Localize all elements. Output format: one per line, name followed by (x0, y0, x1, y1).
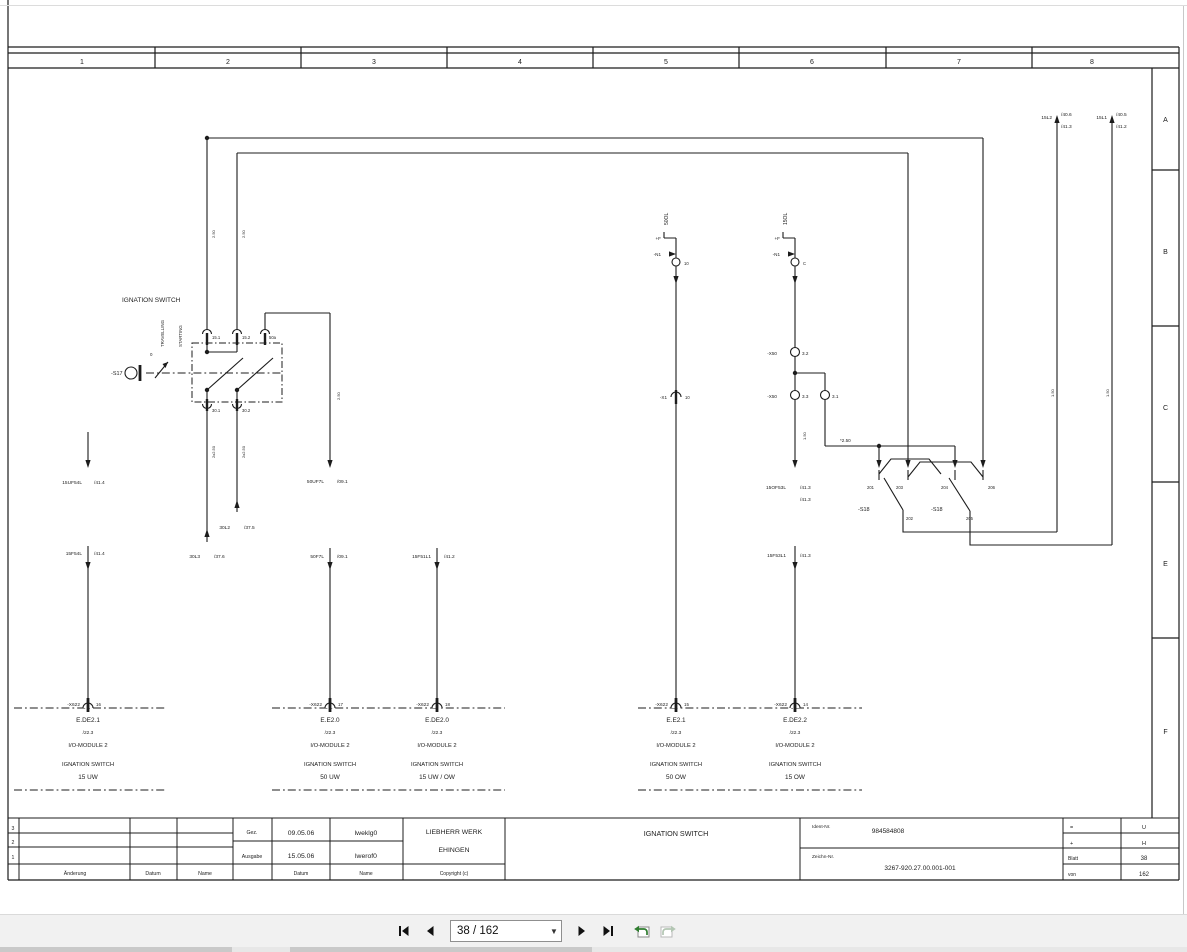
title-block-text: Zeichn-Nr. (812, 854, 834, 860)
frame-row-F: F (1163, 729, 1167, 736)
title-block-text: LIEBHERR WERK (426, 829, 483, 836)
ignition-switch-caption: IGNATION SWITCH (122, 297, 181, 304)
schematic-label: 2x2.50 (211, 445, 216, 458)
schematic-label: 10 (684, 261, 689, 266)
io-function-label: IGNATION SWITCH (769, 762, 821, 768)
next-view-button[interactable] (656, 919, 680, 943)
arrowhead (876, 460, 881, 468)
previous-view-icon (632, 923, 652, 939)
first-page-button[interactable] (392, 919, 416, 943)
schematic-label: /41.4 (94, 551, 105, 557)
chevron-down-icon[interactable]: ▼ (547, 927, 561, 936)
taskbar-segment (290, 947, 592, 952)
viewer-toolbar: 38 / 162 ▼ (0, 914, 1187, 948)
schematic-label: 50a (269, 335, 277, 340)
s17-label: -S17 (111, 371, 123, 377)
arrowhead (1054, 115, 1059, 123)
io-channel-label: 15 UW / OW (419, 774, 456, 781)
dash-dot-separators (14, 373, 862, 790)
first-page-icon (396, 923, 412, 939)
taskbar-edge (0, 947, 1187, 952)
schematic-label: /40.6 (1061, 112, 1072, 118)
io-signal-name: E.DE2.0 (425, 717, 449, 724)
schematic-label: *2.50 (840, 438, 851, 443)
title-block-text: Datum (294, 871, 309, 877)
schematic-label: /41.2 (1116, 124, 1127, 130)
schematic-label: /41.4 (94, 480, 105, 486)
schematic-label: 50F7L (310, 554, 324, 560)
viewer-top-edge (0, 5, 1187, 6)
connector-pins (88, 365, 795, 712)
schematic-label: 15.1 (212, 335, 221, 340)
frame-column-6: 6 (810, 59, 814, 66)
schematic-label: 3.3 (802, 394, 809, 399)
schematic-label: 2.50 (241, 229, 246, 238)
title-block-text: 3267-920.27.00.001-001 (884, 865, 956, 872)
viewer-right-edge (1183, 6, 1184, 915)
io-module-label: I/O-MODULE 2 (775, 743, 814, 749)
io-signal-name: E.E2.0 (320, 717, 340, 724)
arrowhead (85, 562, 90, 570)
schematic-label: 15OF53L (766, 485, 786, 491)
schematic-label: 15F51L1 (412, 554, 431, 560)
io-channel-label: 50 OW (666, 774, 687, 781)
arrowhead (792, 460, 797, 468)
position-0-label: 0 (150, 352, 153, 357)
pdf-viewer-window: IGNATION SWITCHTRAVELLINGSTARTING0-S1715… (0, 0, 1187, 952)
io-channel-label: 15 UW (78, 774, 98, 781)
x622-connector-label: -X622 (416, 702, 429, 708)
arrowhead (788, 251, 795, 256)
title-block-text: 38 (1141, 856, 1148, 862)
previous-page-icon (422, 923, 438, 939)
junction-dots (205, 136, 881, 448)
title-block-text: Änderung (64, 870, 87, 877)
title-block-text: Blatt (1068, 856, 1079, 862)
next-page-button[interactable] (570, 919, 594, 943)
s18-label: -S18 (931, 507, 943, 513)
title-block-text: 09.05.06 (288, 830, 315, 837)
schematic-label: -X50 (767, 394, 777, 399)
title-block-text: EHINGEN (439, 847, 470, 854)
title-block-text: Datum (145, 871, 160, 877)
s18-label: -S18 (858, 507, 870, 513)
schematic-label: 1.50 (1050, 388, 1055, 397)
schematic-label: +F (656, 236, 662, 241)
previous-page-button[interactable] (418, 919, 442, 943)
title-block-text: Gez. (247, 830, 258, 836)
arrowhead (1109, 115, 1114, 123)
key-switch-icon (125, 367, 137, 379)
schematic-label: 2.50 (211, 229, 216, 238)
arrowhead (673, 276, 678, 284)
arrowhead (905, 460, 910, 468)
frame-column-4: 4 (518, 59, 522, 66)
arrowhead (952, 460, 957, 468)
schematic-label: -N1 (654, 252, 662, 257)
last-page-button[interactable] (596, 919, 620, 943)
x622-connector-label: -X622 (655, 702, 668, 708)
title-block-grid (8, 818, 1179, 880)
schematic-label: 15F53L1 (767, 553, 786, 559)
title-block-text: lwerof0 (355, 853, 377, 860)
taskbar-segment (0, 947, 232, 952)
sheet-frame (8, 0, 1179, 880)
frame-column-3: 3 (372, 59, 376, 66)
title-block-text: H (1142, 841, 1146, 847)
schematic-label: 30.2 (242, 408, 251, 413)
starting-label: STARTING (178, 325, 183, 347)
schematic-label: /09.1 (337, 554, 348, 560)
schematic-label: 1.50 (802, 431, 807, 440)
schematic-label: 30L3 (189, 554, 200, 560)
io-function-label: IGNATION SWITCH (411, 762, 463, 768)
io-signal-name: E.E2.1 (666, 717, 686, 724)
title-block-text: = (1070, 825, 1073, 831)
frame-column-7: 7 (957, 59, 961, 66)
schematic-label: /41.3 (800, 497, 811, 503)
title-block-text: 162 (1139, 872, 1150, 878)
schematic-label: 206 (988, 485, 996, 490)
x622-pin-number: 16 (96, 702, 101, 707)
frame-row-B: B (1163, 249, 1168, 256)
title-block-text: 3 (12, 826, 15, 832)
schematic-label: /41.3 (800, 553, 811, 559)
schematic-label: 30.1 (212, 408, 221, 413)
x622-pin-number: 17 (338, 702, 343, 707)
io-sheet-ref: /22.3 (790, 730, 801, 736)
wire-50ol: 50OL (664, 213, 670, 225)
title-block-text: 15.05.06 (288, 853, 315, 860)
schematic-label: /41.2 (444, 554, 455, 560)
schematic-label: 15.2 (242, 335, 251, 340)
arrowhead (85, 460, 90, 468)
title-block-text: U (1142, 825, 1146, 831)
next-page-icon (574, 923, 590, 939)
page-number-value: 38 / 162 (451, 925, 547, 937)
frame-row-A: A (1163, 117, 1168, 124)
schematic-label: 3.1 (832, 394, 839, 399)
x622-pin-number: 14 (803, 702, 808, 707)
title-block-text: Copyright (c) (440, 871, 469, 877)
frame-column-2: 2 (226, 59, 230, 66)
arrowhead (204, 529, 209, 537)
last-page-icon (600, 923, 616, 939)
arrowhead (327, 562, 332, 570)
schematic-label: -N1 (773, 252, 781, 257)
schematic-label: 2.50 (336, 391, 341, 400)
connector-arcs (83, 330, 800, 709)
schematic-label: 3.2 (802, 351, 809, 356)
arrowhead (792, 276, 797, 284)
title-block-text: IGNATION SWITCH (644, 829, 709, 838)
x622-connector-label: -X622 (774, 702, 787, 708)
schematic-drawing: IGNATION SWITCHTRAVELLINGSTARTING0-S1715… (0, 0, 1187, 915)
io-sheet-ref: /22.3 (432, 730, 443, 736)
schematic-label: 10 (685, 395, 690, 400)
schematic-label: 15L1 (1096, 115, 1107, 121)
title-block-text: 1 (12, 855, 15, 861)
schematic-label: -X1 (660, 395, 668, 400)
schematic-label: 201 (867, 485, 875, 490)
io-module-label: I/O-MODULE 2 (310, 743, 349, 749)
io-module-label: I/O-MODULE 2 (68, 743, 107, 749)
schematic-label: 15F54L (66, 551, 83, 557)
schematic-label: /41.3 (1061, 124, 1072, 130)
terminal-circles (125, 258, 830, 400)
schematic-label: 50UF7L (307, 479, 324, 485)
io-signal-name: E.DE2.1 (76, 717, 100, 724)
schematic-label: 15L2 (1041, 115, 1052, 121)
schematic-label: 203 (896, 485, 904, 490)
schematic-label: 204 (941, 485, 949, 490)
arrowhead (327, 460, 332, 468)
schematic-label: C (803, 261, 806, 266)
title-block-text: Name (359, 871, 373, 877)
title-block-text: 2 (12, 840, 15, 846)
io-module-label: I/O-MODULE 2 (656, 743, 695, 749)
title-block-text: 984584808 (872, 828, 905, 835)
schematic-label: /40.5 (1116, 112, 1127, 118)
arrowhead (434, 562, 439, 570)
schematic-label: 15UF54L (62, 480, 82, 486)
title-block-text: Ausgabe (242, 854, 263, 860)
arrowhead (669, 251, 676, 256)
next-view-icon (658, 923, 678, 939)
schematic-label: 30L2 (219, 525, 230, 531)
frame-row-C: C (1163, 405, 1168, 412)
io-sheet-ref: /22.3 (83, 730, 94, 736)
schematic-label: 2x2.50 (241, 445, 246, 458)
travelling-label: TRAVELLING (160, 319, 165, 347)
title-block-text: + (1070, 841, 1073, 847)
io-channel-label: 50 UW (320, 774, 340, 781)
io-sheet-ref: /22.3 (325, 730, 336, 736)
frame-column-1: 1 (80, 59, 84, 66)
io-channel-label: 15 OW (785, 774, 806, 781)
arrowhead (234, 500, 239, 508)
arrowhead (792, 562, 797, 570)
schematic-label: /37.5 (244, 525, 255, 531)
frame-column-8: 8 (1090, 59, 1094, 66)
title-block-text: Name (198, 871, 212, 877)
previous-view-button[interactable] (630, 919, 654, 943)
page-number-input[interactable]: 38 / 162 ▼ (450, 920, 562, 942)
arrowhead (980, 460, 985, 468)
io-function-label: IGNATION SWITCH (304, 762, 356, 768)
title-block-text: lweklg0 (355, 830, 378, 837)
x622-connector-label: -X622 (309, 702, 322, 708)
title-block-text: von (1068, 872, 1076, 878)
x622-pin-number: 15 (684, 702, 689, 707)
io-function-label: IGNATION SWITCH (62, 762, 114, 768)
frame-column-5: 5 (664, 59, 668, 66)
schematic-label: 205 (966, 516, 974, 521)
signal-arrows (85, 115, 1114, 570)
schematic-label: -X50 (767, 351, 777, 356)
schematic-label: +F (775, 236, 781, 241)
title-block-text: Ident-Nr. (812, 824, 830, 830)
io-signal-name: E.DE2.2 (783, 717, 807, 724)
io-sheet-ref: /22.3 (671, 730, 682, 736)
terminal-pins (207, 333, 676, 411)
schematic-label: /09.1 (337, 479, 348, 485)
io-function-label: IGNATION SWITCH (650, 762, 702, 768)
schematic-label: /41.3 (800, 485, 811, 491)
io-module-label: I/O-MODULE 2 (417, 743, 456, 749)
x622-connector-label: -X622 (67, 702, 80, 708)
wire-15ol: 15OL (783, 213, 789, 225)
x622-pin-number: 18 (445, 702, 450, 707)
schematic-label: /37.6 (214, 554, 225, 560)
frame-row-E: E (1163, 561, 1168, 568)
schematic-label: 1.50 (1105, 388, 1110, 397)
schematic-label: 202 (906, 516, 914, 521)
